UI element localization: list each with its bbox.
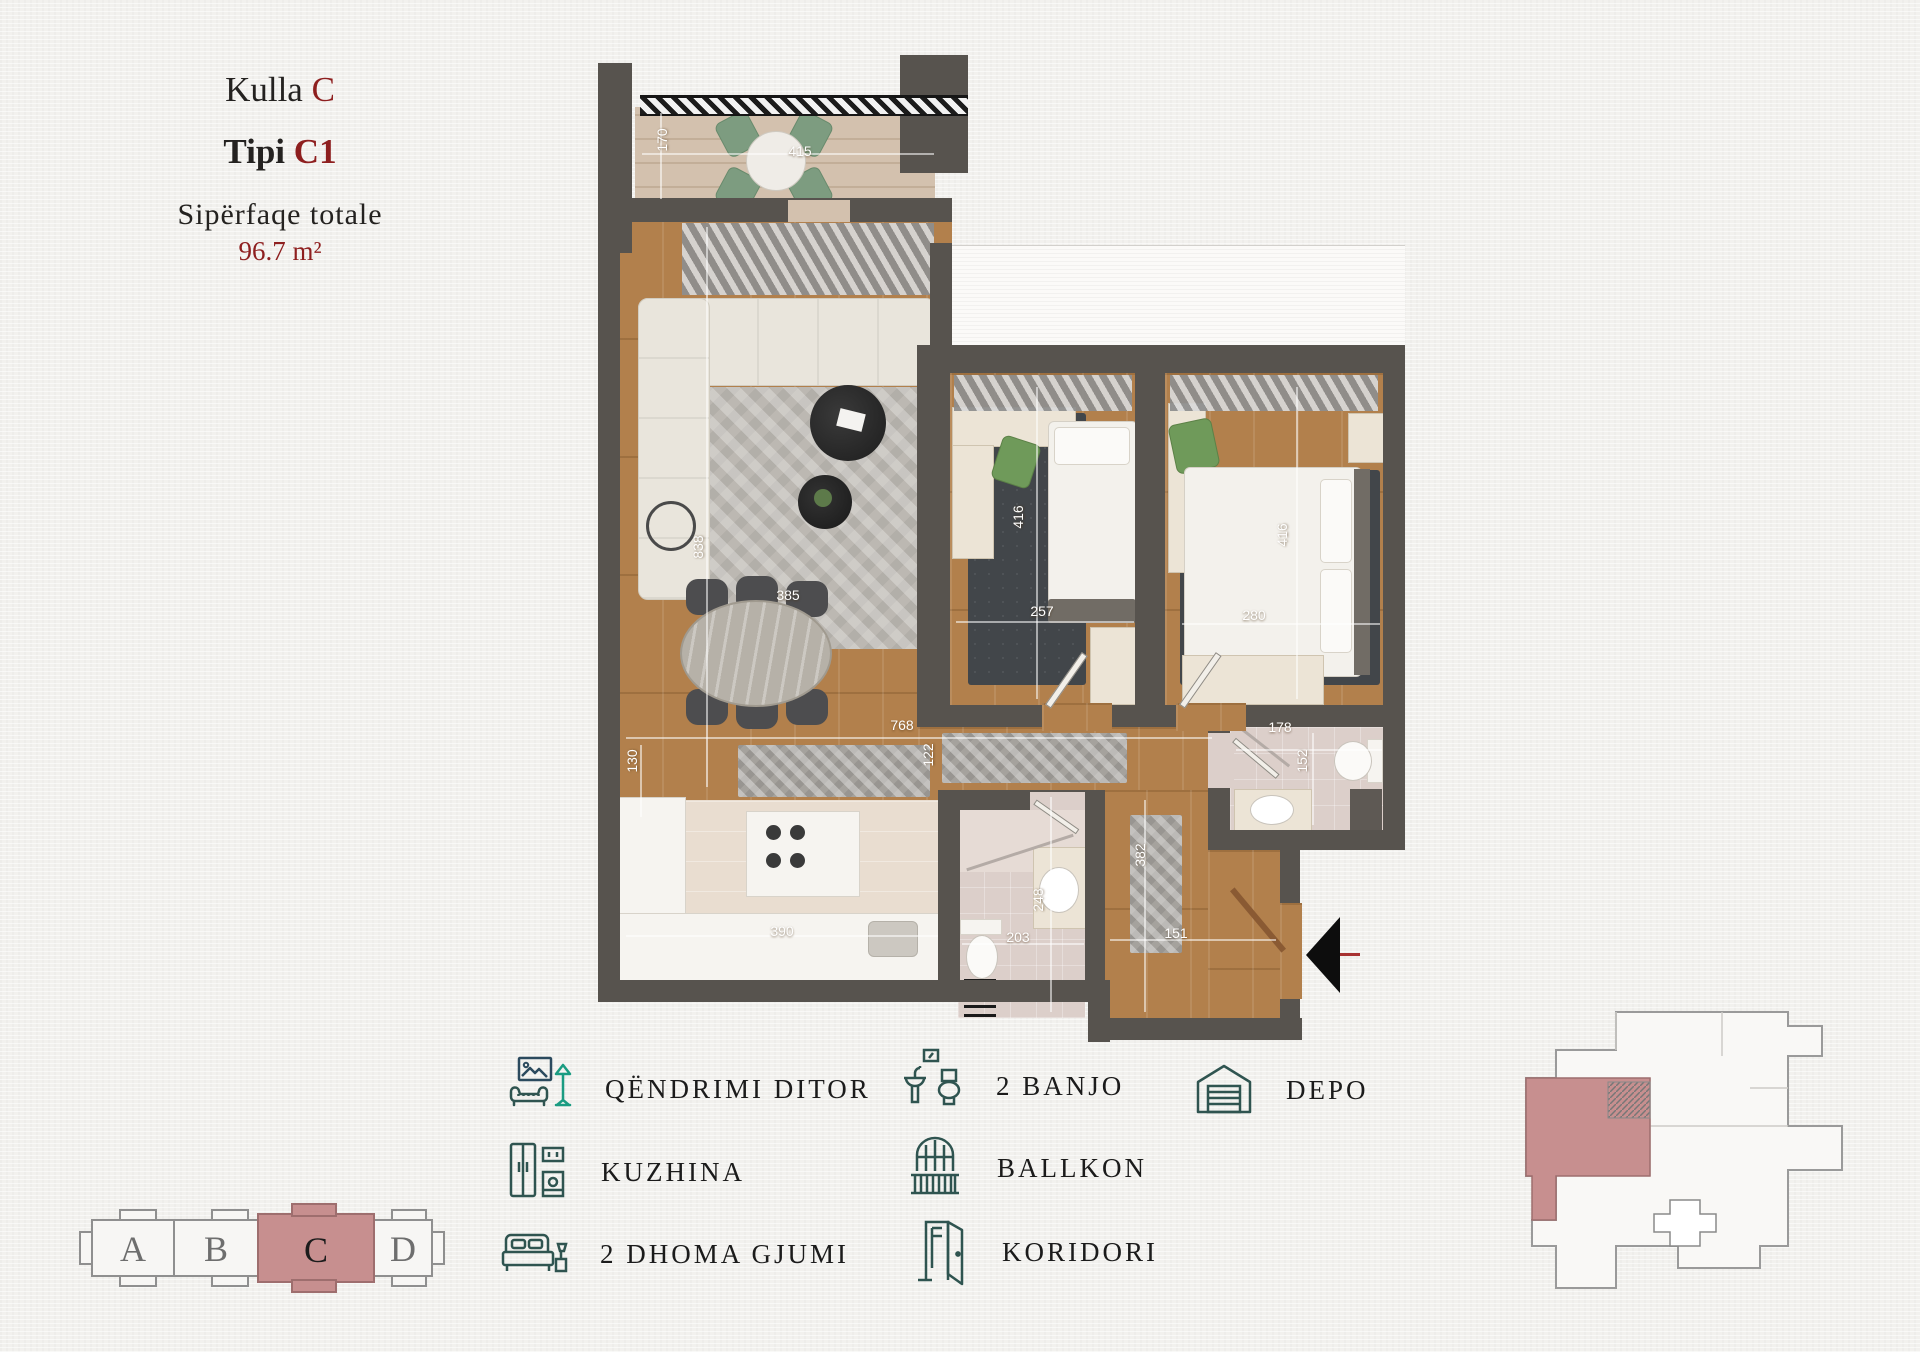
- balcony-railing: [640, 95, 968, 116]
- dimension-label: 838: [690, 535, 706, 558]
- building-footprint-map: [1520, 1008, 1850, 1298]
- type-label: Tipi: [223, 132, 285, 171]
- legend-item-living: QËNDRIMI DITOR: [505, 1055, 871, 1123]
- bedroom1-pillow: [1054, 427, 1130, 465]
- bedroom1-door-opening: [1042, 703, 1112, 731]
- bath-icon: [900, 1048, 966, 1124]
- dimension-label: 130: [624, 749, 640, 772]
- tower-label: Kulla: [225, 70, 303, 109]
- dimension-label: 416: [1010, 505, 1026, 528]
- dimension-line: [1036, 387, 1038, 699]
- type-value: C1: [294, 132, 337, 171]
- area-value: 96.7 m²: [85, 236, 475, 267]
- legend-item-corridor: KORIDORI: [908, 1218, 1158, 1286]
- dimension-label: 152: [1294, 749, 1310, 772]
- bedroom2-pillow: [1320, 569, 1352, 653]
- adjacent-unit: [952, 245, 1405, 346]
- kitchen-tall-units: [618, 797, 686, 917]
- wall: [1280, 850, 1300, 908]
- legend-item-storage: DEPO: [1192, 1058, 1369, 1122]
- entrance-marker-line: [1340, 953, 1360, 956]
- floor-lamp: [646, 501, 696, 551]
- cooktop-burner: [790, 853, 805, 868]
- dimension-line: [626, 737, 1212, 739]
- area-label: Sipërfaqe totale: [85, 198, 475, 232]
- dimension-label: 768: [890, 717, 913, 733]
- dimension-label: 151: [1164, 925, 1187, 941]
- dimension-label: 280: [1242, 607, 1265, 623]
- legend-label-bedrooms: 2 DHOMA GJUMI: [600, 1239, 849, 1270]
- dimension-label: 170: [654, 128, 670, 151]
- toilet-2-tank: [960, 919, 1002, 935]
- wall: [1280, 997, 1300, 1040]
- legend-item-bedrooms: 2 DHOMA GJUMI: [500, 1222, 849, 1286]
- legend-label-storage: DEPO: [1286, 1075, 1369, 1106]
- dimension-label: 178: [1268, 719, 1291, 735]
- entrance-arrow-icon: [1306, 917, 1340, 993]
- dimension-label: 382: [1132, 843, 1148, 866]
- wall: [930, 243, 952, 347]
- bedroom1-curtains: [954, 375, 1132, 411]
- dimension-label: 122: [920, 743, 936, 766]
- wall: [917, 345, 950, 727]
- plan-header: Kulla C Tipi C1 Sipërfaqe totale 96.7 m²: [85, 70, 475, 267]
- dimension-label: 415: [788, 143, 811, 159]
- entry-door-opening: [1280, 903, 1302, 999]
- toilet-2-bowl: [966, 935, 998, 979]
- cooktop-burner: [790, 825, 805, 840]
- kitchen-island: [746, 811, 860, 897]
- wall: [930, 345, 1405, 373]
- legend-label-balcony: BALLKON: [997, 1153, 1147, 1184]
- bed-icon: [500, 1222, 570, 1286]
- wall: [1085, 790, 1105, 1002]
- wall: [598, 980, 1110, 1002]
- wall: [1383, 713, 1405, 850]
- dimension-line: [1296, 387, 1298, 699]
- balcony-table: [746, 131, 806, 191]
- toilet-1-bowl: [1334, 741, 1372, 781]
- wall: [1100, 1018, 1302, 1040]
- tower-title: Kulla C: [85, 70, 475, 110]
- bedroom2-door-opening: [1176, 703, 1246, 731]
- kitchen-icon: [505, 1140, 571, 1204]
- dimension-line: [660, 113, 662, 199]
- dining-table: [680, 600, 832, 707]
- hall-runner-rug-1: [738, 745, 930, 797]
- stairwell-hatch: [1608, 1082, 1650, 1118]
- floor-plan: 170 415 838 385 768 122 416 257 416 280 …: [490, 55, 1420, 1055]
- sink-1-basin: [1250, 795, 1294, 825]
- plant: [814, 489, 832, 507]
- hall-runner-rug-2: [942, 733, 1127, 783]
- wall: [1208, 830, 1405, 850]
- type-title: Tipi C1: [85, 132, 475, 172]
- bedroom1-desk-return: [952, 445, 994, 559]
- legend-item-kitchen: KUZHINA: [505, 1140, 745, 1204]
- dimension-label: 416: [1274, 523, 1290, 546]
- dimension-line: [706, 227, 708, 787]
- cooktop-burner: [766, 825, 781, 840]
- bedroom1-closet: [1090, 627, 1138, 705]
- living-curtains: [682, 223, 934, 295]
- door-icon: [908, 1218, 972, 1286]
- legend-label-living: QËNDRIMI DITOR: [605, 1074, 871, 1105]
- depo-icon: [1192, 1058, 1256, 1122]
- legend-label-kitchen: KUZHINA: [601, 1157, 745, 1188]
- wall: [598, 198, 620, 1002]
- bathroom1-door-opening: [1208, 733, 1234, 788]
- dimension-line: [1312, 733, 1314, 825]
- section-c[interactable]: C: [304, 1230, 328, 1270]
- dimension-line: [1182, 623, 1380, 625]
- dimension-line: [956, 621, 1134, 623]
- balcony-icon: [903, 1135, 967, 1201]
- dimension-label: 390: [770, 923, 793, 939]
- kitchen-sink: [868, 921, 918, 957]
- section-a[interactable]: A: [120, 1229, 146, 1269]
- bedroom2-pillow: [1320, 479, 1352, 563]
- bath1-cabinet: [1350, 789, 1382, 831]
- bedroom2-curtains: [1170, 375, 1378, 411]
- dimension-line: [1144, 800, 1146, 1012]
- legend-item-bathrooms: 2 BANJO: [900, 1048, 1124, 1124]
- bedroom2-headboard: [1354, 469, 1370, 675]
- legend-label-corridor: KORIDORI: [1002, 1237, 1158, 1268]
- dimension-label: 257: [1030, 603, 1053, 619]
- tower-letter: C: [312, 70, 335, 109]
- dimension-line: [640, 745, 642, 817]
- building-section-selector: A B C D: [62, 1192, 462, 1304]
- cooktop-burner: [766, 853, 781, 868]
- sofa-icon: [505, 1055, 575, 1123]
- section-b[interactable]: B: [204, 1229, 228, 1269]
- wall: [938, 790, 960, 1002]
- dimension-label: 385: [776, 587, 799, 603]
- dimension-label: 248: [1030, 888, 1046, 911]
- wall: [917, 705, 1405, 727]
- dimension-line: [1110, 939, 1276, 941]
- balcony-door-opening: [788, 200, 850, 222]
- wall: [1135, 373, 1165, 705]
- wall: [1383, 345, 1405, 725]
- dimension-line: [1050, 797, 1052, 1012]
- bedroom1-bed-bench: [1048, 599, 1136, 623]
- legend-label-bathrooms: 2 BANJO: [996, 1071, 1124, 1102]
- wall: [598, 198, 952, 222]
- legend-item-balcony: BALLKON: [903, 1135, 1147, 1201]
- dimension-label: 203: [1006, 929, 1029, 945]
- section-d[interactable]: D: [390, 1229, 416, 1269]
